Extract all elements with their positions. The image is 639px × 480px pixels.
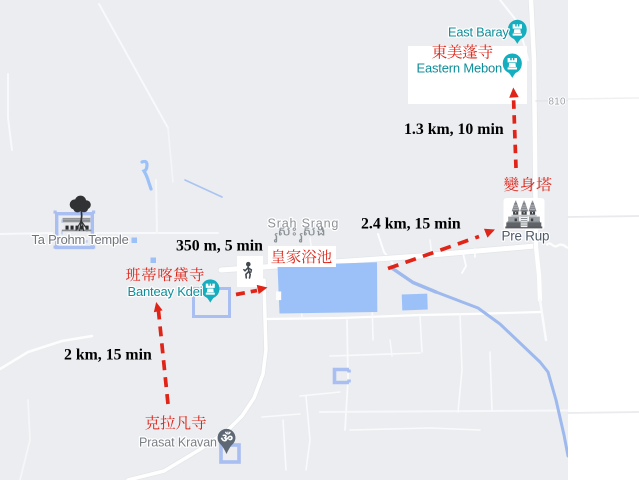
svg-text:350 m, 5 min: 350 m, 5 min <box>176 238 263 255</box>
svg-text:810: 810 <box>549 97 566 108</box>
svg-text:Prasat Kravan: Prasat Kravan <box>139 436 217 450</box>
svg-text:Srah Srang: Srah Srang <box>268 217 340 231</box>
svg-text:East Baray: East Baray <box>448 25 509 40</box>
svg-text:Eastern Mebon: Eastern Mebon <box>417 61 503 76</box>
svg-text:2.4 km, 15 min: 2.4 km, 15 min <box>361 216 461 233</box>
svg-text:Pre Rup: Pre Rup <box>502 229 550 244</box>
svg-text:Ta Prohm Temple: Ta Prohm Temple <box>32 232 129 247</box>
svg-text:Banteay Kdei: Banteay Kdei <box>128 284 203 299</box>
svg-text:2 km, 15 min: 2 km, 15 min <box>64 347 152 364</box>
svg-text:1.3 km, 10 min: 1.3 km, 10 min <box>404 121 504 138</box>
